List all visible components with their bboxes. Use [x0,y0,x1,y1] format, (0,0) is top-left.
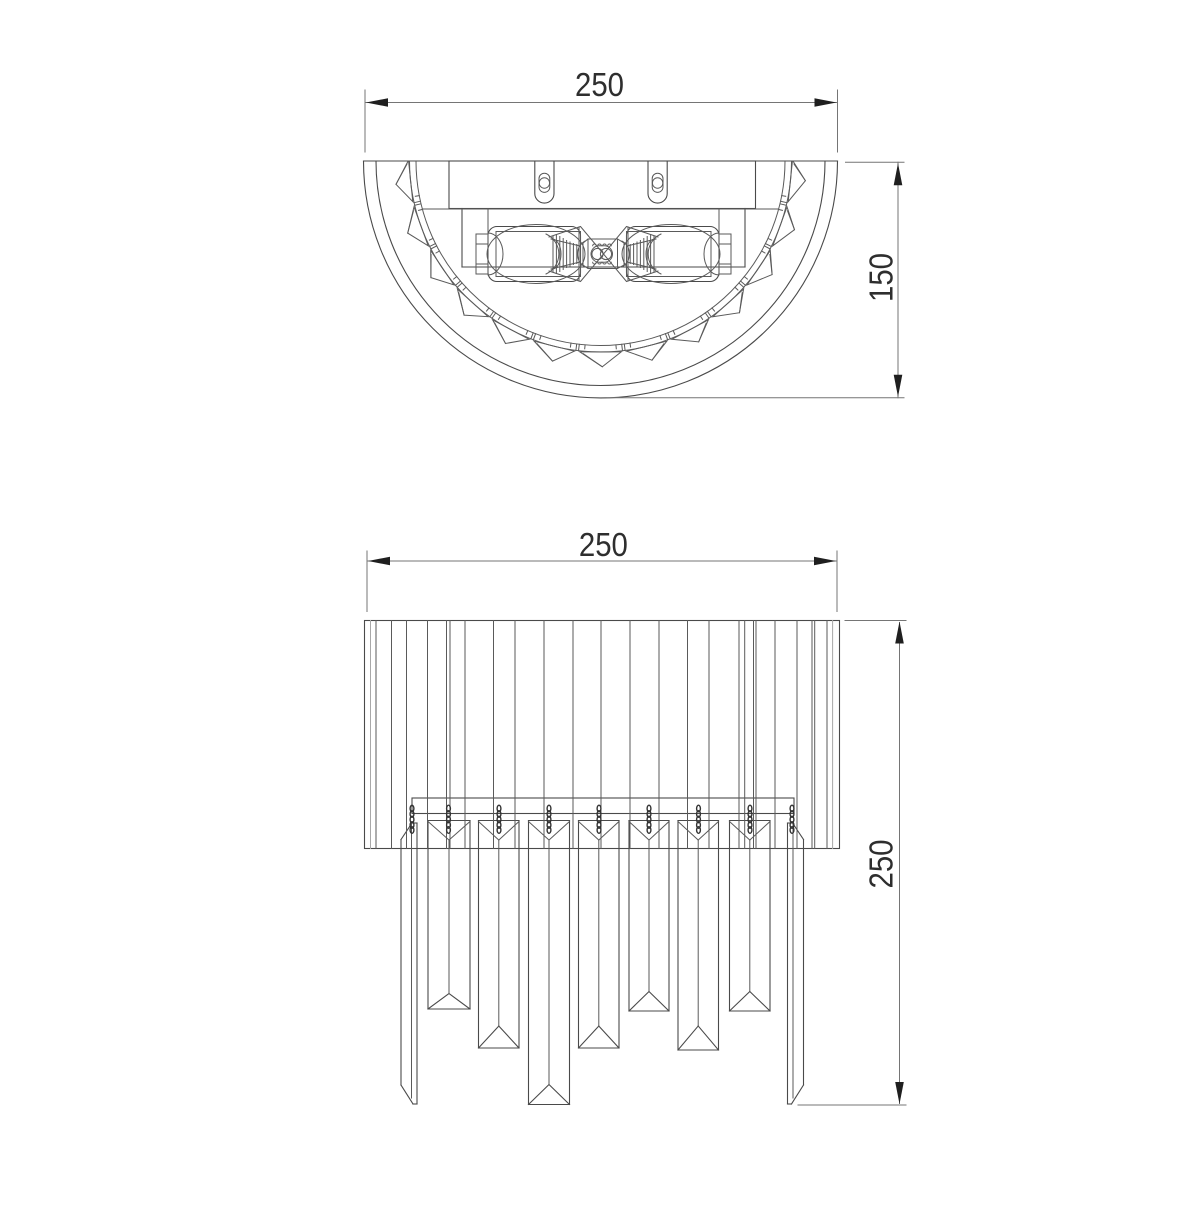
svg-text:250: 250 [579,526,628,563]
svg-text:150: 150 [862,253,899,302]
svg-text:250: 250 [575,66,624,103]
svg-text:250: 250 [862,840,899,889]
